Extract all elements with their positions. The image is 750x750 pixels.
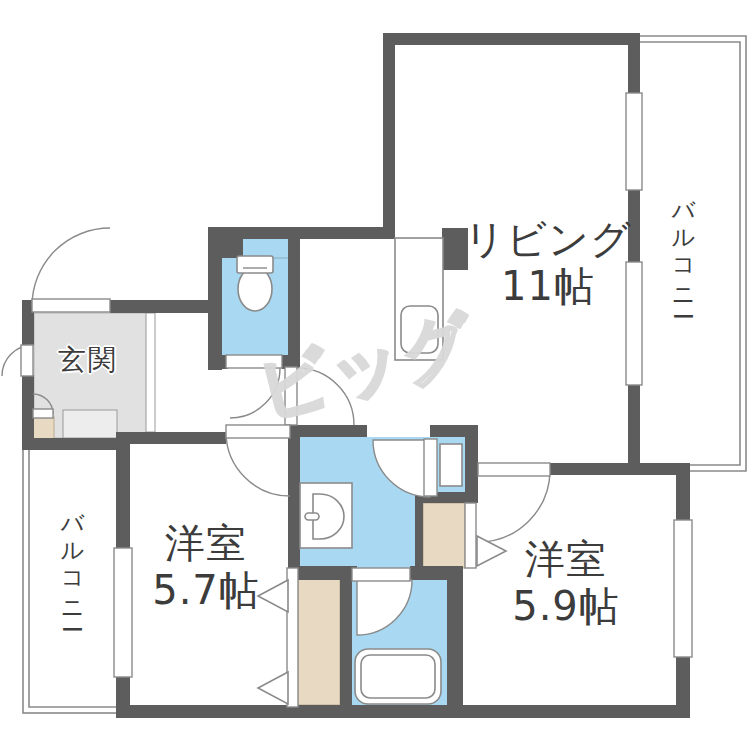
wall-segment — [415, 503, 423, 568]
closet-57-marker-2 — [258, 672, 288, 704]
wall-segment — [22, 438, 127, 450]
wall-segment — [116, 432, 226, 444]
wall-segment — [430, 425, 478, 437]
wall-segment — [116, 677, 130, 707]
wall-segment — [676, 657, 690, 718]
wall-segment — [465, 437, 478, 497]
room-name: 洋室 — [116, 520, 296, 567]
wall-segment — [110, 300, 213, 313]
bedroom-59-door-arc — [478, 470, 550, 542]
entrance-step-edge — [146, 313, 155, 432]
room-size: 11帖 — [436, 263, 660, 310]
wall-segment — [447, 568, 463, 705]
room-label-entrance: 玄関 — [58, 341, 118, 379]
wall-segment — [116, 705, 690, 718]
washing-machine-pan-icon — [440, 444, 462, 486]
room-name: リビング — [436, 216, 660, 263]
wall-segment — [383, 33, 640, 45]
front-door-arc — [32, 228, 110, 306]
entrance-step — [63, 410, 117, 438]
floorplan: ビッグ リビング 11帖 洋室 5.7帖 洋室 5.9帖 玄関 バルコニー バル… — [0, 0, 750, 750]
front-door-leaf — [32, 299, 110, 312]
closet-57 — [298, 578, 340, 705]
room-label-bedroom-57: 洋室 5.7帖 — [116, 520, 296, 614]
washroom-door-leaf — [424, 439, 437, 496]
closet-59-door — [465, 503, 476, 568]
bedroom-57-door-arc — [226, 432, 290, 496]
wall-segment — [550, 463, 690, 475]
room-label-living: リビング 11帖 — [436, 216, 660, 310]
wall-segment — [208, 355, 228, 369]
closet-59 — [423, 503, 465, 568]
wall-segment — [208, 227, 243, 258]
wall-segment — [628, 385, 640, 463]
room-size: 5.9帖 — [476, 583, 656, 630]
wall-segment — [676, 463, 690, 520]
wall-segment — [628, 33, 640, 93]
bath-door-leaf — [352, 568, 410, 581]
meter-door-leaf — [21, 345, 33, 376]
bedroom-59-door-leaf — [478, 463, 550, 476]
shoe-door-leaf — [33, 409, 53, 418]
room-label-balcony-left: バルコニー — [58, 497, 89, 667]
washbasin-tap-icon — [305, 513, 319, 520]
wall-segment — [383, 33, 395, 238]
window-living-1 — [626, 93, 642, 190]
toilet-tank-icon — [237, 256, 273, 273]
room-label-bedroom-59: 洋室 5.9帖 — [476, 536, 656, 630]
window-bedroom-59 — [674, 520, 692, 657]
room-label-balcony-right: バルコニー — [669, 184, 700, 354]
entrance-cabinet — [31, 417, 54, 439]
bathtub-inner — [361, 655, 435, 698]
room-name: 洋室 — [476, 536, 656, 583]
room-size: 5.7帖 — [116, 567, 296, 614]
wall-segment — [340, 568, 352, 705]
